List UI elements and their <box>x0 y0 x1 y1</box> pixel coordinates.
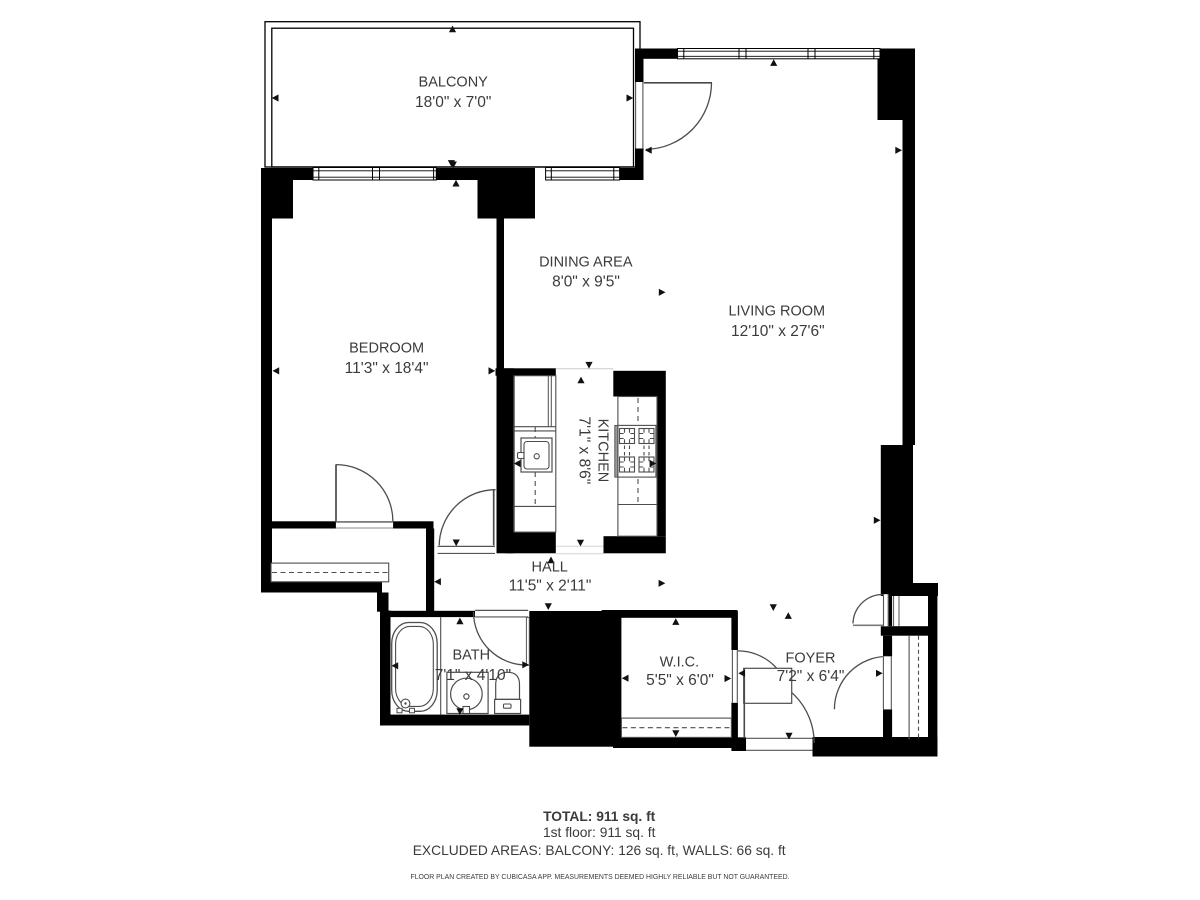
svg-text:11'3" x 18'4": 11'3" x 18'4" <box>345 360 429 377</box>
svg-text:FOYER: FOYER <box>786 651 836 667</box>
svg-text:7'1" x 4'10": 7'1" x 4'10" <box>435 667 511 684</box>
svg-text:FLOOR PLAN CREATED BY CUBICASA: FLOOR PLAN CREATED BY CUBICASA APP. MEAS… <box>411 874 790 881</box>
svg-text:8'0" x 9'5": 8'0" x 9'5" <box>552 274 620 291</box>
svg-text:1st floor: 911 sq. ft: 1st floor: 911 sq. ft <box>543 825 656 840</box>
svg-text:12'10" x 27'6": 12'10" x 27'6" <box>731 323 825 340</box>
svg-text:BEDROOM: BEDROOM <box>349 340 424 356</box>
svg-text:5'5" x 6'0": 5'5" x 6'0" <box>646 672 714 689</box>
svg-text:BATH: BATH <box>452 648 490 664</box>
svg-text:11'5" x 2'11": 11'5" x 2'11" <box>509 578 592 595</box>
svg-text:W.I.C.: W.I.C. <box>660 654 699 670</box>
svg-text:EXCLUDED AREAS: BALCONY: 126 s: EXCLUDED AREAS: BALCONY: 126 sq. ft, WAL… <box>413 843 786 858</box>
svg-text:18'0" x 7'0": 18'0" x 7'0" <box>415 94 491 111</box>
svg-text:7'1" x 8'6": 7'1" x 8'6" <box>576 417 593 485</box>
svg-text:DINING AREA: DINING AREA <box>539 255 633 271</box>
svg-text:TOTAL: 911 sq. ft: TOTAL: 911 sq. ft <box>543 809 656 824</box>
svg-text:BALCONY: BALCONY <box>419 74 489 90</box>
svg-text:LIVING ROOM: LIVING ROOM <box>728 304 825 320</box>
svg-text:7'2" x 6'4": 7'2" x 6'4" <box>777 668 845 685</box>
svg-text:HALL: HALL <box>532 560 568 576</box>
svg-text:KITCHEN: KITCHEN <box>595 419 611 483</box>
